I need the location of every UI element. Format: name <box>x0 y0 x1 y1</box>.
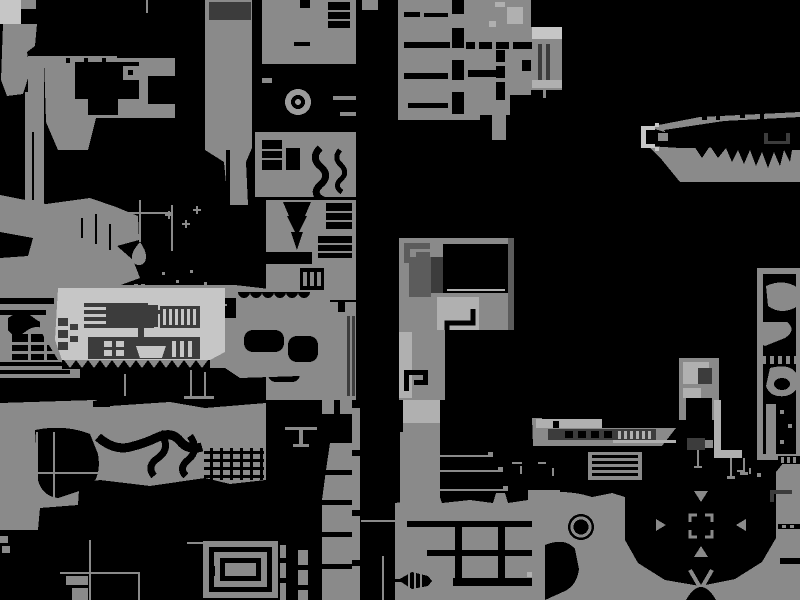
room-bar-1 <box>303 272 307 286</box>
tick-line-1 <box>440 455 490 457</box>
tick-dot-2 <box>498 467 503 472</box>
spear-hatch-3 <box>420 573 422 588</box>
tm-slot-d <box>408 103 448 108</box>
dust-dot-3 <box>190 270 193 273</box>
wire-a <box>730 458 732 476</box>
left-column <box>25 92 44 208</box>
dot-row <box>294 42 310 46</box>
trs-mark-bar <box>764 141 790 144</box>
block-bit-a <box>66 576 88 585</box>
vent-slat-4 <box>592 473 638 476</box>
maze-right-edge <box>508 238 514 330</box>
ladder-b <box>298 550 308 600</box>
ring-emblem-core <box>295 99 301 105</box>
ruin-light-top <box>532 27 562 39</box>
hairline-h-2 <box>62 247 105 249</box>
low-col-gap-3 <box>322 532 352 537</box>
tm-slot-b <box>404 42 450 48</box>
thin-col-gap-2 <box>352 510 360 516</box>
spear-hatch-1 <box>408 573 410 588</box>
tm-light-a <box>495 2 505 7</box>
conveyor-window-2 <box>578 431 586 438</box>
grill-slot-6 <box>193 309 196 325</box>
compass-dot-2 <box>749 468 751 474</box>
below-cross <box>184 396 214 399</box>
ship-window-4 <box>116 350 124 356</box>
ship-left-cell-5 <box>70 336 78 342</box>
ladder-b-gap-1 <box>298 565 308 570</box>
t-mark-stem <box>299 430 303 445</box>
hang-mark-d <box>520 466 522 474</box>
ship-left-cell-2 <box>58 330 68 338</box>
mid-col-stripe-a <box>347 316 350 396</box>
top-nub <box>362 0 378 10</box>
mid-light-block <box>403 400 440 423</box>
ship-bar-window-2 <box>180 341 184 357</box>
room-bar-2 <box>310 272 314 286</box>
vent-slat-1 <box>592 455 638 458</box>
grid-c-rung-1 <box>318 243 352 245</box>
window-grid-c <box>318 236 352 258</box>
hang-wire-foot <box>694 466 702 468</box>
meander-a <box>404 243 430 249</box>
ship-bar-window-3 <box>188 341 192 357</box>
conveyor-slot-2 <box>624 431 627 439</box>
tm-light-c <box>489 21 496 27</box>
trs-top-block-2 <box>716 113 720 120</box>
ship-left-slit-b <box>0 310 46 315</box>
tm-notch <box>522 60 531 71</box>
ship-left-cell-4 <box>70 324 78 330</box>
tm-slot-a1 <box>404 12 420 17</box>
conveyor-light-bar <box>536 419 602 428</box>
conveyor-window-1 <box>565 431 573 438</box>
trs-bracket-bottom <box>641 144 655 148</box>
speckle-v-3 <box>230 448 233 480</box>
low-col-gap-1 <box>322 470 352 475</box>
grill-slot-1 <box>163 309 166 325</box>
mb-meander-b <box>404 375 409 391</box>
rcol-slit-1 <box>766 356 770 364</box>
ship-window-3 <box>104 350 112 356</box>
wire-a-foot <box>727 476 735 479</box>
tower-light-foot <box>683 388 701 398</box>
window-grid-b <box>326 203 352 229</box>
blackroom-foot <box>714 450 742 458</box>
speckle-v-1 <box>210 448 213 480</box>
trs-bracket-top <box>641 126 655 130</box>
grill-slot-4 <box>181 309 184 325</box>
hang-mark-b <box>552 468 554 476</box>
tm-vert-tick-1 <box>496 62 505 66</box>
channel-hairline-h <box>361 520 399 522</box>
maze-room-black <box>443 244 511 293</box>
rcol-slit-4 <box>790 356 794 364</box>
cavern-tab <box>262 78 272 83</box>
tick-line-2 <box>440 470 500 472</box>
dust-dot-1 <box>162 272 165 275</box>
ship-bar-window-1 <box>172 341 176 357</box>
conveyor-notch <box>553 421 559 428</box>
low-col-gap-4 <box>322 564 352 569</box>
rcol-hole <box>774 378 790 390</box>
grid-c-rung-2 <box>318 251 352 253</box>
trunk-stem <box>226 150 230 205</box>
room-bar-3 <box>317 272 321 286</box>
redge-dash-row <box>778 524 800 529</box>
rcol-blob-a <box>766 282 798 311</box>
top-hairline-a <box>146 0 148 13</box>
vent-slat-2 <box>592 461 638 464</box>
tower-dark-notch <box>698 368 712 384</box>
tm-spine-4 <box>452 92 464 114</box>
mb-meander-c <box>414 380 428 385</box>
ladder-a-gap-2 <box>280 578 286 583</box>
grid-a-rung-2 <box>328 19 350 21</box>
apron-blob-a <box>244 330 284 352</box>
grid-d-post-1 <box>28 334 31 360</box>
redge-comb-tooth-1 <box>781 457 784 463</box>
hang-block-side <box>705 440 713 448</box>
grill-slot-5 <box>187 309 190 325</box>
speckle-v-6 <box>260 448 263 480</box>
conveyor-slot-6 <box>648 431 651 439</box>
trs-top-block-4 <box>760 113 764 119</box>
t-mark-foot <box>293 444 309 447</box>
tm-row-b-tick-3 <box>509 42 513 49</box>
mid-col-stripe-b <box>352 316 355 396</box>
tick-dot-1 <box>488 452 493 457</box>
speckle-v-4 <box>240 448 243 480</box>
window-grid-a <box>328 2 350 28</box>
cavern-shelf-a <box>333 96 356 100</box>
ruin-light-bottom <box>532 80 562 88</box>
conveyor-dark-band <box>548 429 656 440</box>
tm-tail <box>492 115 506 140</box>
mb-meander-d <box>423 370 428 380</box>
tm-slot-a2 <box>424 13 448 17</box>
platform-a-room-b <box>88 99 118 115</box>
tower-shaft <box>686 398 712 420</box>
redge-bracket-v <box>770 494 774 502</box>
grill-slot-2 <box>169 309 172 325</box>
ship-core-blob <box>106 305 158 327</box>
below-line-c <box>124 374 126 396</box>
speckle-v-5 <box>250 448 253 480</box>
maze-floor-line <box>447 289 505 291</box>
vent-slat-3 <box>592 467 638 470</box>
low-col-room-gap <box>334 400 340 414</box>
conveyor-slot-3 <box>630 431 633 439</box>
below-line-b <box>204 372 206 398</box>
bm-vert-1 <box>455 521 462 586</box>
comb-slot-5 <box>338 302 345 312</box>
bm-speckle-1 <box>527 572 532 577</box>
wire-b <box>743 458 745 472</box>
meander-c <box>416 252 430 257</box>
conveyor-slot-4 <box>636 431 639 439</box>
tm-slot-c <box>404 73 448 79</box>
trs-dot-b <box>655 147 659 151</box>
apron-blob-b <box>288 336 318 362</box>
conveyor-window-3 <box>591 431 599 438</box>
speckle-v-2 <box>220 448 223 480</box>
foot-bit-a <box>0 536 8 543</box>
louvre-b-rung-1 <box>262 149 282 151</box>
conveyor-slot-1 <box>618 431 621 439</box>
band-block <box>286 148 300 170</box>
dust-dot-2 <box>176 280 179 283</box>
redge-dash-tooth-2 <box>790 525 794 528</box>
corner-gray-nub <box>21 0 36 9</box>
tm-row-b-tick-1 <box>475 42 479 49</box>
thin-col-gap-1 <box>352 450 360 456</box>
pine-left-col <box>266 200 282 300</box>
tm-spine-2 <box>452 28 464 48</box>
redge-comb-tooth-3 <box>793 457 796 463</box>
trs-tab <box>658 133 668 141</box>
louvre-b-rung-2 <box>262 158 282 160</box>
ruin-bar-a <box>538 44 542 82</box>
map-canvas[interactable] <box>0 0 800 600</box>
redge-comb-b <box>780 558 800 564</box>
bl-pocket <box>93 401 110 407</box>
compass-dot-1 <box>737 470 745 472</box>
trs-top-block-3 <box>740 112 745 118</box>
grid-a-rung-1 <box>328 10 350 12</box>
foot-bit-b <box>2 546 10 553</box>
grill-slot-3 <box>175 309 178 325</box>
hairline-v-90 <box>89 540 91 600</box>
t-mark-bar <box>285 427 317 430</box>
spear-hatch-2 <box>414 572 416 589</box>
hang-wire <box>697 450 699 466</box>
below-line-a <box>190 370 192 398</box>
trs-dot-a <box>655 123 659 127</box>
hairline-v-1 <box>139 200 141 242</box>
conveyor-window-4 <box>604 431 612 438</box>
louvre-b <box>262 140 282 170</box>
thin-col-gap-3 <box>352 560 360 566</box>
ship-left-slit-a <box>0 298 54 304</box>
ladder-a <box>280 545 286 600</box>
ship-window-2 <box>116 341 124 347</box>
room-inset-dot <box>128 70 133 75</box>
cave-lattice-v2 <box>53 432 55 504</box>
ring-top-slit <box>300 0 310 8</box>
tm-light-b <box>507 7 523 24</box>
ship-window-1 <box>104 341 112 347</box>
spear-needle <box>395 579 403 582</box>
grid-b-rung-1 <box>326 211 352 213</box>
ruin-stem <box>543 88 546 98</box>
mid-light-base <box>403 423 440 432</box>
low-col-gap-2 <box>322 500 352 505</box>
rcol-dot-2 <box>788 424 792 428</box>
ruin-ring-center <box>225 563 256 576</box>
tm-row-b-tick-2 <box>492 42 496 49</box>
hang-block <box>687 438 705 450</box>
platform-a-notch <box>148 76 175 104</box>
cave-lattice-v1 <box>36 432 38 504</box>
platform-tick-b <box>84 58 88 63</box>
trunk-mottle <box>209 2 251 20</box>
tm-spine-1 <box>452 0 464 14</box>
block-bit-b <box>72 588 88 600</box>
redge-dash-tooth-1 <box>782 525 786 528</box>
ladder-a-gap-1 <box>280 558 286 563</box>
rcol-strip <box>766 404 776 454</box>
meander-slab-dark <box>431 257 443 293</box>
tm-vert <box>496 50 505 100</box>
thin-col <box>352 408 360 600</box>
ship-trapezoid <box>136 346 166 358</box>
tm-spine-3 <box>452 60 464 80</box>
hang-mark-a <box>538 462 546 464</box>
rcol-slit-3 <box>782 356 786 364</box>
tick-line-3 <box>440 489 505 491</box>
redge-bracket-h <box>770 490 792 494</box>
ship-left-cell-3 <box>58 342 68 350</box>
cavern-shelf-b <box>340 112 356 116</box>
platform-tick-a <box>66 58 70 63</box>
tm-vert-tick-2 <box>496 78 505 82</box>
trs-top-block-1 <box>702 114 707 120</box>
rcol-slit-2 <box>774 356 778 364</box>
corner-light-block <box>0 0 21 24</box>
ruin-ring-gap <box>209 566 215 576</box>
hairline-h-1 <box>90 212 172 214</box>
hairline-h-572 <box>60 572 138 574</box>
rcol-dot-3 <box>780 440 784 444</box>
tick-dot-3 <box>503 486 508 491</box>
dust-dot-4 <box>204 282 207 285</box>
redge-comb-tooth-2 <box>787 457 790 463</box>
rcol-dot-1 <box>780 410 784 414</box>
left-column-slit <box>32 132 34 200</box>
ladder-b-gap-2 <box>298 585 308 590</box>
conveyor-bottom-line <box>613 440 676 443</box>
hairline-v-139 <box>138 572 140 600</box>
band-gap <box>266 252 312 264</box>
hang-mark-c <box>512 462 522 464</box>
compass-dot-3 <box>757 473 761 477</box>
bm-vert-2 <box>498 521 505 586</box>
meander-slab <box>409 257 431 297</box>
game-map-screen[interactable] <box>0 0 800 600</box>
grid-b-rung-2 <box>326 220 352 222</box>
wire-b-foot <box>740 472 748 475</box>
blackroom-left-strip <box>714 400 721 458</box>
platform-tick-c <box>102 58 106 63</box>
ship-left-cell-1 <box>58 318 68 326</box>
channel-hairline-v <box>382 556 384 600</box>
apron-row-b <box>0 370 70 374</box>
ruin-bar-b <box>546 44 550 82</box>
hairline-v-2 <box>171 205 173 251</box>
conveyor-slot-5 <box>642 431 645 439</box>
